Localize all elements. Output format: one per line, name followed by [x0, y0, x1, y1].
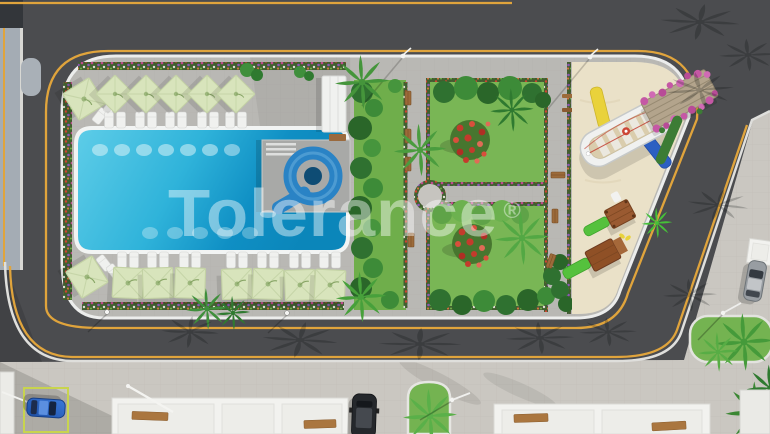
platform-stairs: [266, 143, 296, 156]
building-roof-right-edge: [740, 390, 770, 434]
cabana-shadow: [316, 78, 322, 132]
service-road-yellow-line: [3, 28, 5, 266]
wooden-plank: [514, 413, 548, 422]
bench-plank: [562, 94, 573, 98]
parked-car-blue: [22, 393, 65, 418]
scene-canvas: [0, 0, 770, 434]
parked-car-black: [347, 393, 380, 434]
wooden-plank: [652, 421, 686, 431]
splash: [260, 210, 276, 218]
aerial-render: Tolerance®: [0, 0, 770, 434]
median-island: [21, 58, 41, 96]
slide-center: [304, 167, 322, 185]
shadow-top-left: [0, 0, 23, 28]
mirror: [376, 408, 379, 413]
sun-umbrella: [137, 267, 174, 305]
flower-bed-top: [78, 62, 346, 70]
platform-shadow: [256, 140, 262, 212]
mirror: [349, 407, 352, 412]
wooden-plank: [132, 411, 168, 420]
wooden-plank: [304, 419, 336, 428]
wooden-bench-pool: [329, 134, 346, 141]
wall-left: [0, 372, 14, 434]
building-roof-b: [494, 404, 710, 434]
median-curb: [20, 24, 23, 270]
bench-plank: [562, 108, 573, 112]
